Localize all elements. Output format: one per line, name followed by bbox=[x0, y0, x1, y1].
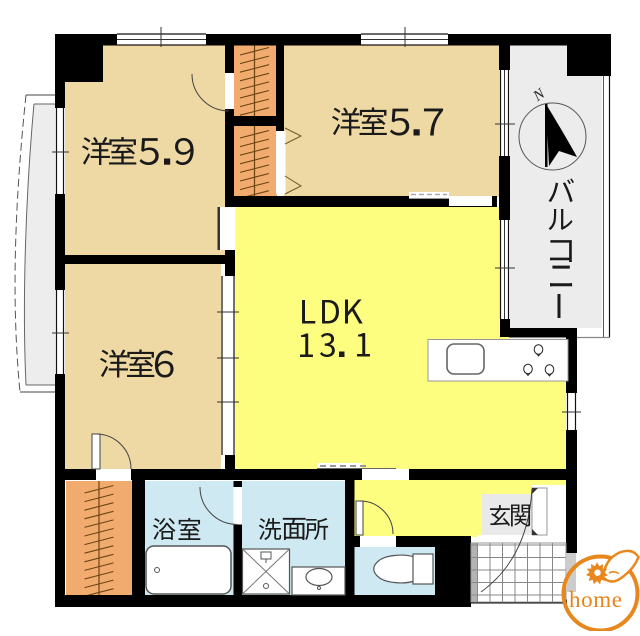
svg-text:home: home bbox=[569, 587, 623, 612]
